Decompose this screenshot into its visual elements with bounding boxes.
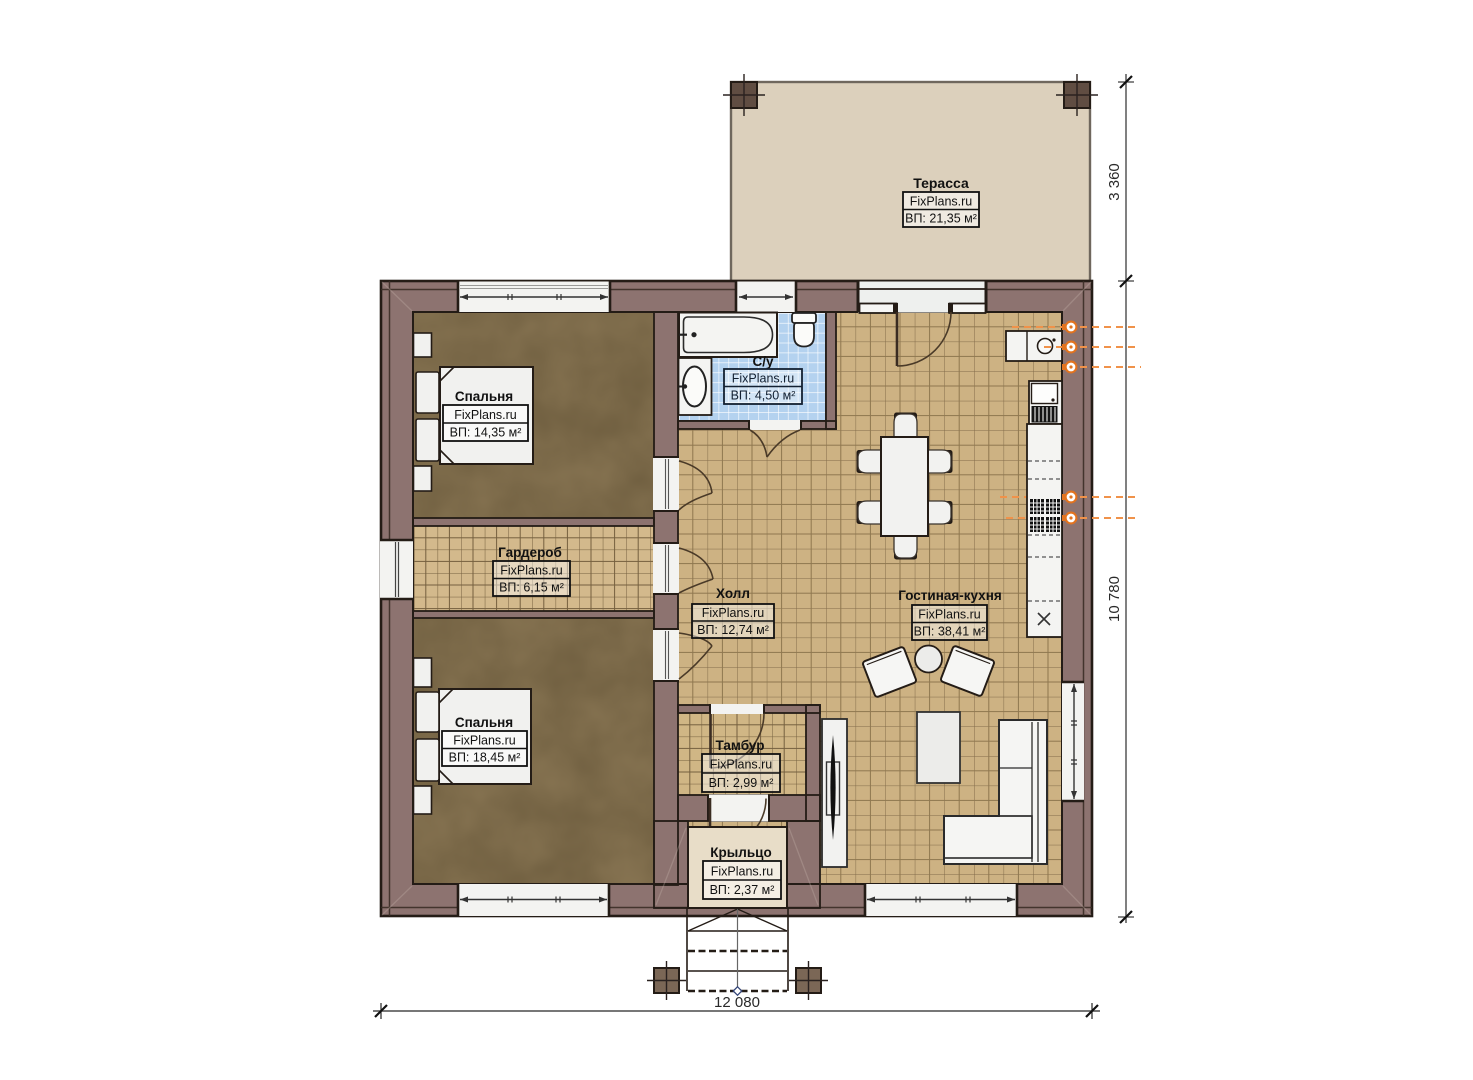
svg-text:FixPlans.ru: FixPlans.ru <box>918 608 981 622</box>
svg-text:FixPlans.ru: FixPlans.ru <box>702 606 765 620</box>
svg-text:FixPlans.ru: FixPlans.ru <box>732 372 795 386</box>
svg-text:Спальня: Спальня <box>455 389 513 404</box>
svg-text:3 360: 3 360 <box>1106 163 1123 201</box>
svg-text:ВП: 38,41 м²: ВП: 38,41 м² <box>914 625 986 639</box>
svg-text:ВП: 21,35 м²: ВП: 21,35 м² <box>905 212 977 226</box>
svg-text:FixPlans.ru: FixPlans.ru <box>710 758 773 772</box>
svg-text:Гардероб: Гардероб <box>498 545 562 560</box>
svg-text:Спальня: Спальня <box>455 715 513 730</box>
svg-text:ВП: 2,37 м²: ВП: 2,37 м² <box>710 883 775 897</box>
svg-text:FixPlans.ru: FixPlans.ru <box>454 408 517 422</box>
svg-text:Крыльцо: Крыльцо <box>710 845 771 860</box>
svg-text:Терасса: Терасса <box>913 175 969 191</box>
svg-text:ВП: 12,74 м²: ВП: 12,74 м² <box>697 623 769 637</box>
svg-text:10 780: 10 780 <box>1106 576 1123 622</box>
svg-text:ВП: 6,15 м²: ВП: 6,15 м² <box>499 581 564 595</box>
svg-text:FixPlans.ru: FixPlans.ru <box>910 195 973 209</box>
svg-text:FixPlans.ru: FixPlans.ru <box>711 865 774 879</box>
svg-text:Тамбур: Тамбур <box>716 738 765 753</box>
svg-text:С/у: С/у <box>752 354 774 369</box>
svg-text:ВП: 18,45 м²: ВП: 18,45 м² <box>449 751 521 765</box>
svg-text:ВП: 14,35 м²: ВП: 14,35 м² <box>450 426 522 440</box>
svg-text:FixPlans.ru: FixPlans.ru <box>453 734 516 748</box>
svg-text:Холл: Холл <box>716 586 750 601</box>
svg-text:ВП: 2,99 м²: ВП: 2,99 м² <box>709 776 774 790</box>
svg-text:12 080: 12 080 <box>714 994 760 1011</box>
svg-text:ВП: 4,50 м²: ВП: 4,50 м² <box>731 389 796 403</box>
svg-text:Гостиная-кухня: Гостиная-кухня <box>898 588 1001 603</box>
svg-text:FixPlans.ru: FixPlans.ru <box>500 564 563 578</box>
